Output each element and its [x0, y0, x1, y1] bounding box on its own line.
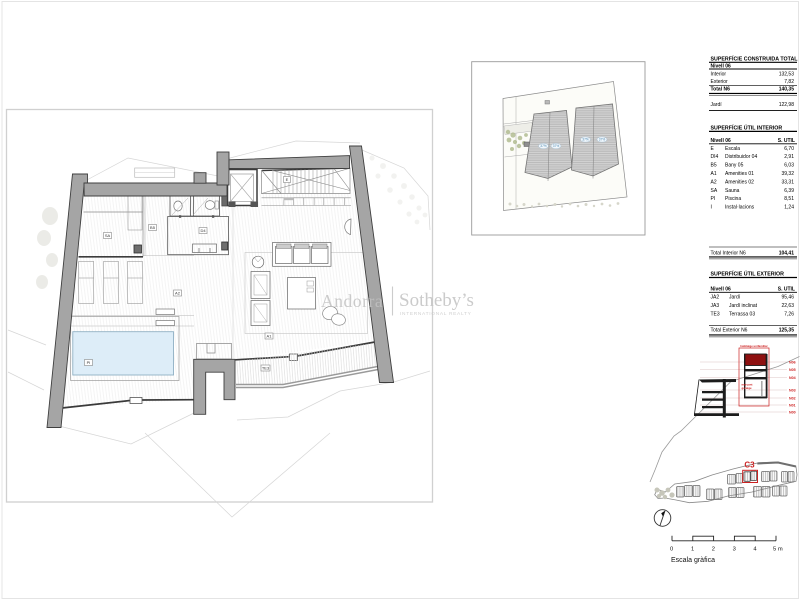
- svg-text:132,53: 132,53: [779, 71, 795, 77]
- svg-text:JA2: JA2: [711, 295, 720, 301]
- svg-text:95,46: 95,46: [781, 295, 794, 301]
- svg-text:37%: 37%: [553, 144, 560, 148]
- svg-text:0: 0: [670, 547, 673, 553]
- svg-text:SA: SA: [105, 233, 111, 238]
- svg-text:Escala: Escala: [725, 146, 740, 152]
- svg-text:C3: C3: [744, 461, 755, 470]
- svg-text:Bany 05: Bany 05: [725, 163, 744, 169]
- svg-text:D4: D4: [200, 228, 206, 233]
- svg-text:habitatge unifamiliar: habitatge unifamiliar: [740, 344, 768, 348]
- svg-text:S. UTIL: S. UTIL: [778, 286, 795, 292]
- svg-text:Amenities 02: Amenities 02: [725, 179, 754, 185]
- svg-text:Jardí: Jardí: [729, 295, 741, 301]
- svg-text:7,82: 7,82: [784, 79, 794, 85]
- svg-text:Sotheby’s: Sotheby’s: [399, 290, 474, 311]
- svg-text:Nivell 06: Nivell 06: [711, 138, 732, 144]
- svg-text:TE3: TE3: [262, 366, 270, 371]
- svg-text:Interior: Interior: [711, 71, 727, 77]
- svg-text:122,98: 122,98: [779, 102, 795, 108]
- svg-text:SUPERFÍCIE ÚTIL EXTERIOR: SUPERFÍCIE ÚTIL EXTERIOR: [711, 270, 785, 278]
- svg-text:A1: A1: [267, 334, 273, 339]
- svg-text:Total N6: Total N6: [711, 87, 731, 93]
- svg-text:SUPERFÍCIE ÚTIL INTERIOR: SUPERFÍCIE ÚTIL INTERIOR: [711, 124, 783, 132]
- svg-text:22,63: 22,63: [781, 303, 794, 309]
- svg-text:N00: N00: [789, 410, 796, 414]
- svg-text:125,35: 125,35: [779, 327, 795, 333]
- svg-text:SUPERFÍCIE CONSTRUIDA TOTAL: SUPERFÍCIE CONSTRUIDA TOTAL: [711, 55, 799, 63]
- svg-text:garatge: garatge: [742, 386, 753, 390]
- svg-text:N04: N04: [789, 376, 796, 380]
- svg-text:Jardí: Jardí: [711, 102, 723, 108]
- svg-text:37%: 37%: [599, 138, 606, 142]
- svg-text:2,91: 2,91: [784, 154, 794, 160]
- svg-text:A2: A2: [711, 179, 717, 185]
- svg-text:N05: N05: [789, 368, 796, 372]
- svg-text:1: 1: [691, 547, 694, 553]
- svg-text:B5: B5: [711, 163, 717, 169]
- svg-text:Escala gràfica: Escala gràfica: [671, 557, 715, 564]
- svg-text:Total Exterior N6: Total Exterior N6: [711, 327, 748, 333]
- svg-text:I: I: [711, 205, 712, 211]
- svg-text:B5: B5: [150, 225, 156, 230]
- svg-text:37%: 37%: [582, 138, 589, 142]
- svg-text:Jardí inclinat: Jardí inclinat: [729, 303, 758, 309]
- svg-text:Nivell 06: Nivell 06: [711, 286, 732, 292]
- svg-text:N03: N03: [789, 388, 796, 392]
- svg-text:DI4: DI4: [711, 154, 719, 160]
- svg-text:A1: A1: [711, 171, 717, 177]
- svg-text:Instal·lacions: Instal·lacions: [725, 205, 755, 211]
- svg-text:Amenities 01: Amenities 01: [725, 171, 754, 177]
- svg-text:104,41: 104,41: [779, 251, 795, 257]
- svg-text:Andorra: Andorra: [321, 291, 383, 311]
- svg-text:Distribuidor 04: Distribuidor 04: [725, 154, 757, 160]
- svg-text:33,31: 33,31: [781, 179, 794, 185]
- svg-text:8,51: 8,51: [784, 196, 794, 202]
- svg-text:N06: N06: [789, 360, 796, 364]
- svg-text:39,32: 39,32: [781, 171, 794, 177]
- svg-text:E: E: [286, 177, 289, 182]
- svg-text:2: 2: [712, 547, 715, 553]
- svg-text:JA3: JA3: [711, 303, 720, 309]
- svg-text:5 m: 5 m: [773, 547, 783, 553]
- svg-text:N02: N02: [789, 396, 796, 400]
- svg-text:A2: A2: [175, 291, 181, 296]
- svg-text:6,70: 6,70: [784, 146, 794, 152]
- svg-text:3: 3: [733, 547, 736, 553]
- svg-text:1,24: 1,24: [784, 205, 794, 211]
- svg-text:140,35: 140,35: [779, 87, 795, 93]
- svg-text:37%: 37%: [540, 144, 547, 148]
- svg-text:Exterior: Exterior: [711, 79, 729, 85]
- svg-text:PI: PI: [711, 196, 716, 202]
- svg-text:N01: N01: [789, 403, 796, 407]
- svg-text:6,03: 6,03: [784, 163, 794, 169]
- svg-text:7,26: 7,26: [784, 311, 794, 317]
- svg-text:PI: PI: [87, 360, 91, 365]
- svg-text:TE3: TE3: [711, 311, 720, 317]
- svg-text:S. UTIL: S. UTIL: [778, 138, 795, 144]
- svg-text:INTERNATIONAL REALTY: INTERNATIONAL REALTY: [400, 311, 472, 317]
- svg-text:SA: SA: [711, 188, 718, 194]
- svg-text:Sauna: Sauna: [725, 188, 740, 194]
- svg-text:6,39: 6,39: [784, 188, 794, 194]
- svg-text:Total Interior N6: Total Interior N6: [711, 251, 747, 257]
- svg-text:Piscina: Piscina: [725, 196, 741, 202]
- svg-text:Terrassa 03: Terrassa 03: [729, 311, 755, 317]
